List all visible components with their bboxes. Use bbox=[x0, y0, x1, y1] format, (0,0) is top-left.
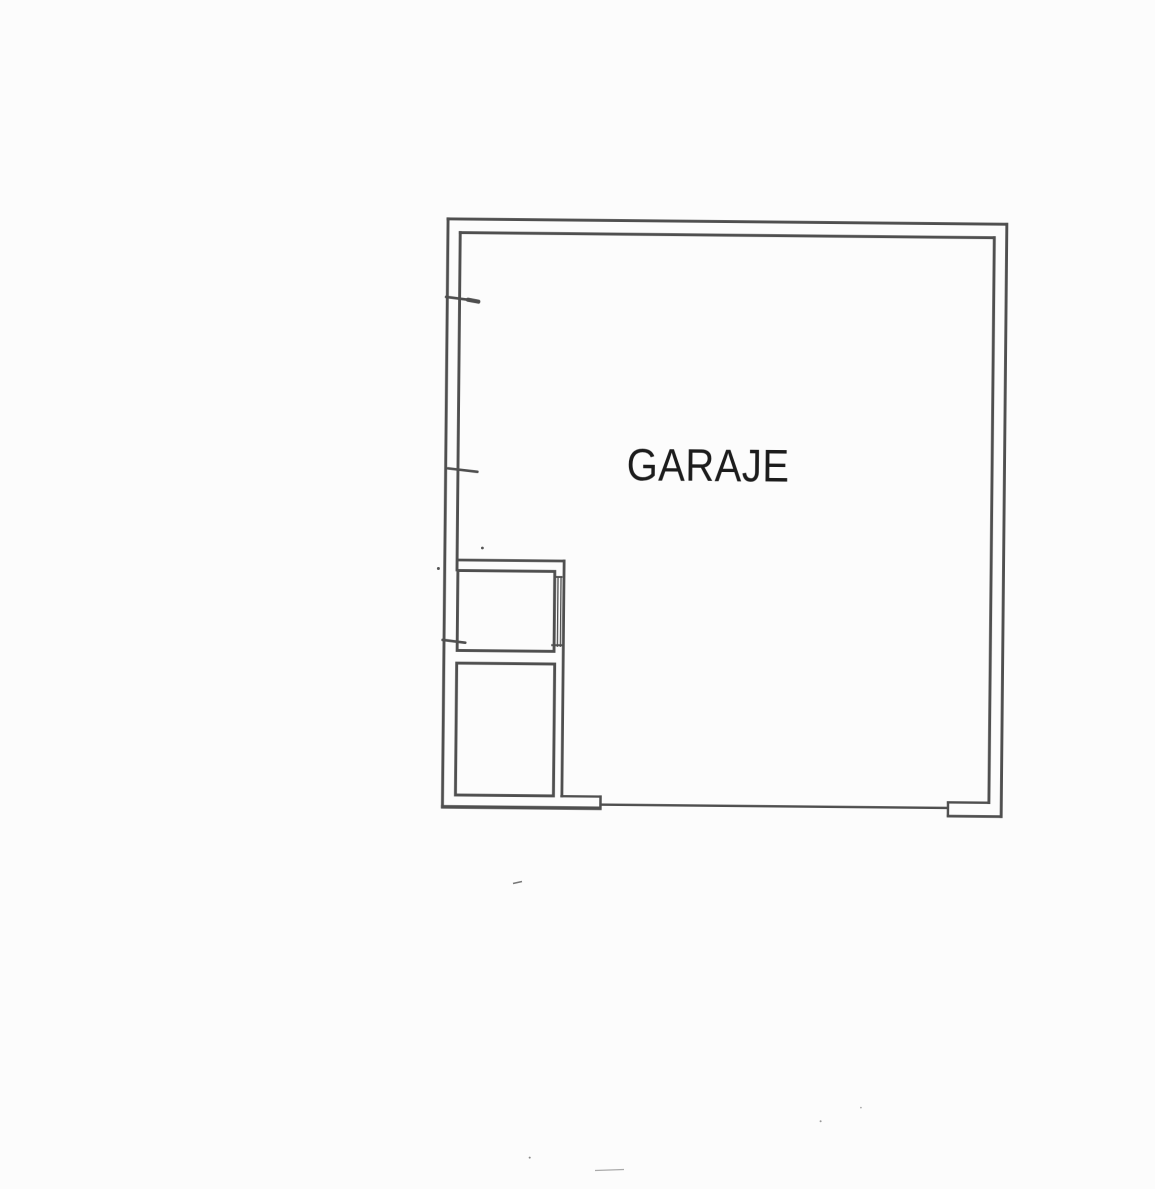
svg-text:GARAJE: GARAJE bbox=[626, 440, 789, 493]
